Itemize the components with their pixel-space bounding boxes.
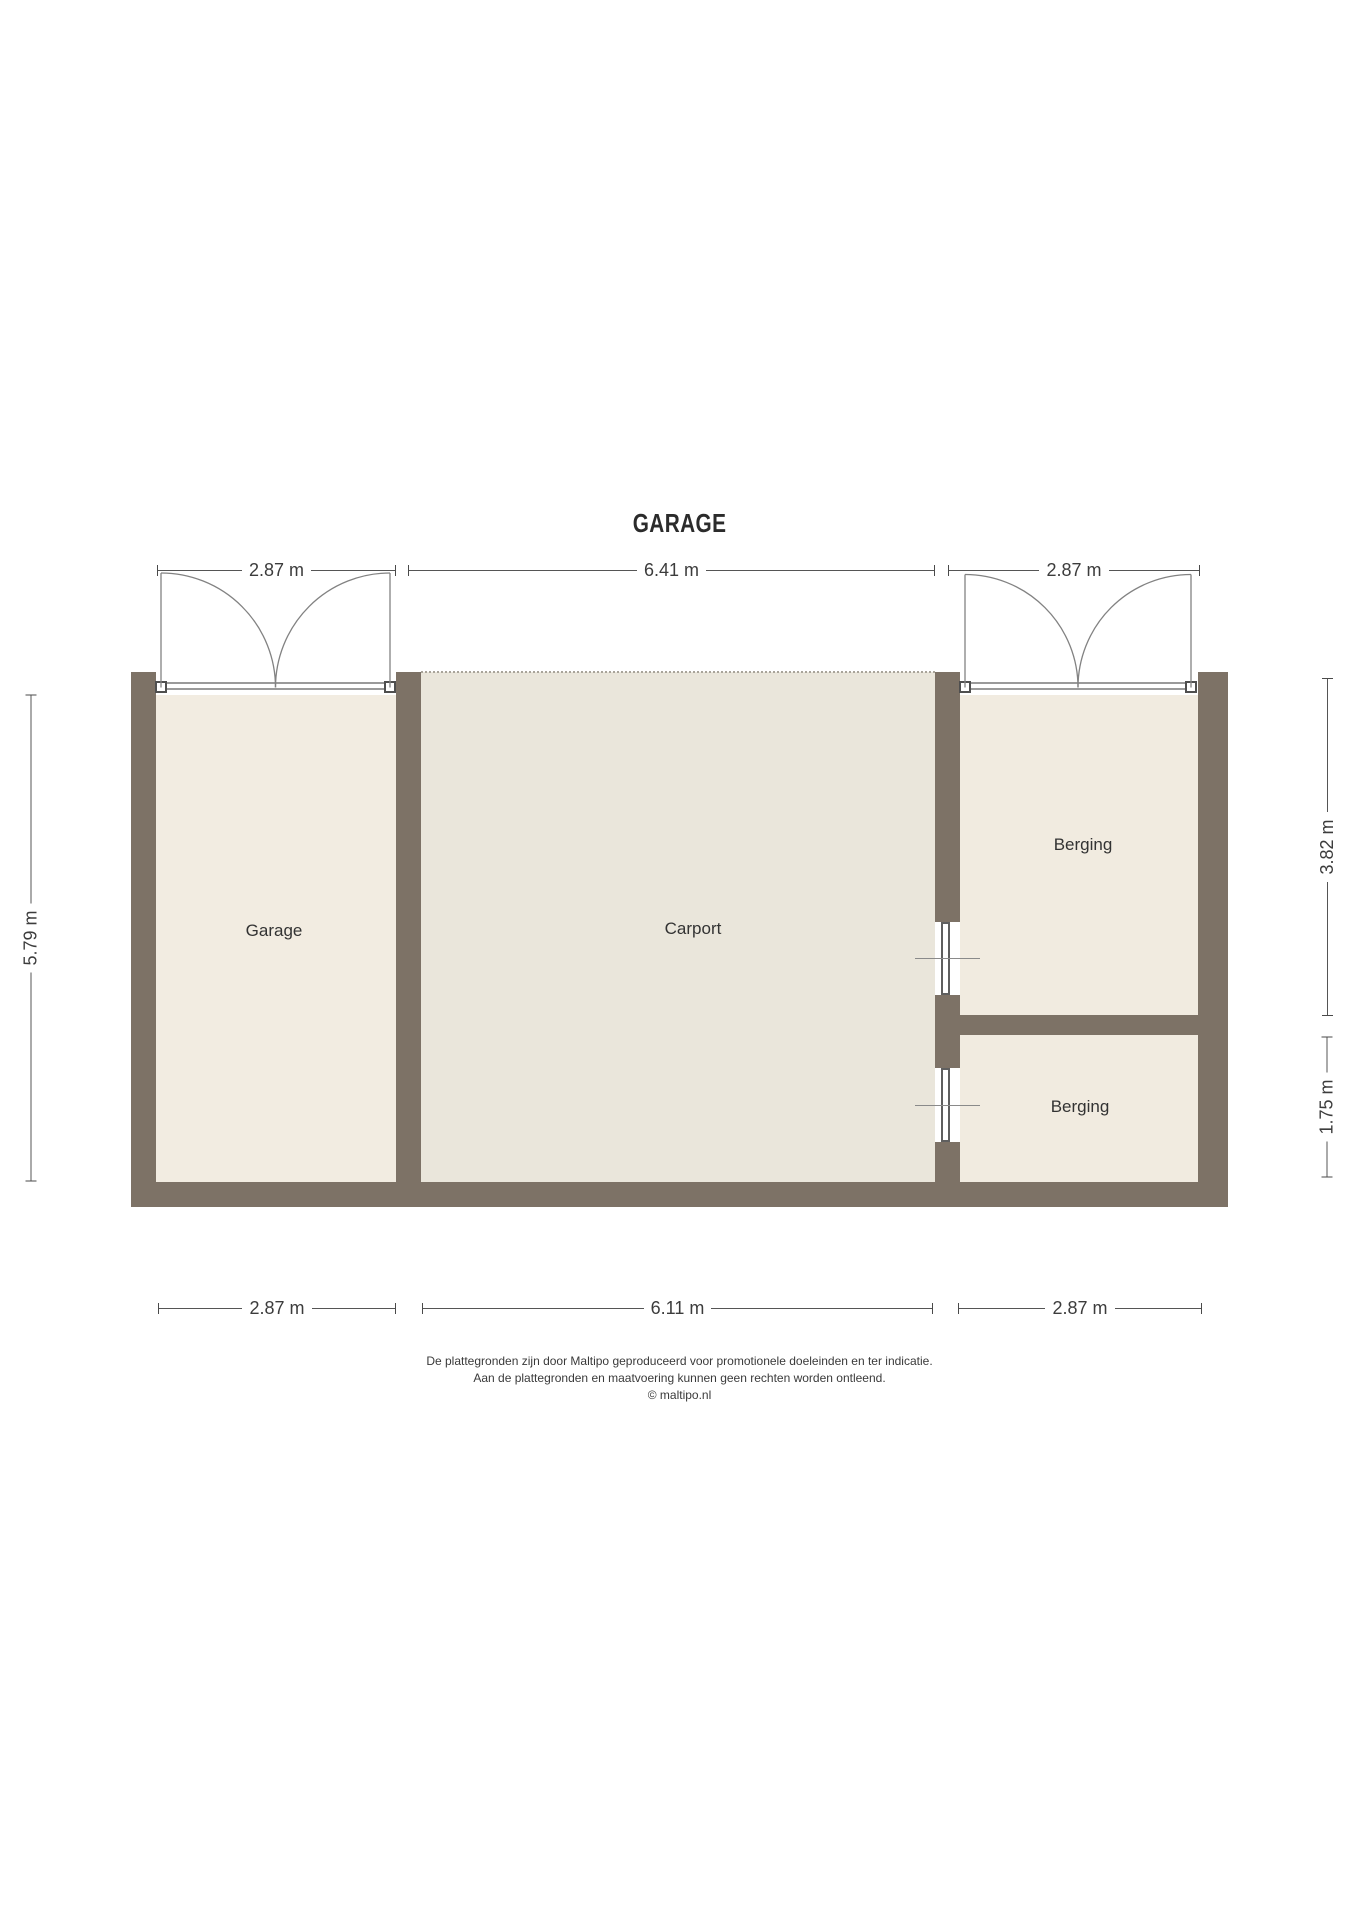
wall-right (1198, 672, 1228, 1207)
berging-door-threshold (971, 682, 1185, 690)
dim-bottom-right: 2.87 m (958, 1298, 1202, 1318)
dim-line (312, 1308, 395, 1309)
berging-top-floor (960, 695, 1198, 1015)
dim-line (30, 696, 31, 904)
dim-line (409, 570, 637, 571)
dim-line (959, 1308, 1045, 1309)
dim-label: 1.75 m (1317, 1072, 1337, 1141)
dim-line (1327, 882, 1328, 1015)
room-label-berging-top: Berging (1054, 835, 1113, 855)
plan-title: GARAGE (131, 508, 1228, 539)
dim-right-upper: 3.82 m (1317, 678, 1337, 1016)
room-label-garage: Garage (246, 921, 303, 941)
door-jamb (155, 681, 167, 693)
dim-line (423, 1308, 644, 1309)
wall-left (131, 672, 156, 1207)
door-jamb (1185, 681, 1197, 693)
dim-tick (1321, 1037, 1332, 1038)
wall-between-bergings (960, 1015, 1198, 1035)
dim-line (1327, 679, 1328, 812)
garage-double-door (161, 573, 390, 688)
dim-label: 2.87 m (1039, 560, 1108, 580)
wall-carport-berging-bottom (935, 1142, 960, 1182)
dim-line (158, 570, 242, 571)
dim-top-middle: 6.41 m (408, 560, 935, 580)
dim-line (30, 973, 31, 1181)
disclaimer-line-1: De plattegronden zijn door Maltipo gepro… (131, 1353, 1228, 1370)
dim-tick (1321, 1177, 1332, 1178)
dim-left: 5.79 m (21, 695, 41, 1182)
dim-label: 5.79 m (21, 903, 41, 972)
wall-carport-berging-top (935, 672, 960, 922)
dim-tick (25, 1181, 36, 1182)
dim-line (159, 1308, 242, 1309)
dim-bottom-middle: 6.11 m (422, 1298, 933, 1318)
window-sill-bottom (915, 1105, 980, 1106)
wall-garage-carport (396, 672, 421, 1182)
plan-title-text: GARAGE (633, 508, 727, 539)
dim-tick (934, 565, 935, 576)
dim-top-left: 2.87 m (157, 560, 396, 580)
dim-right-lower: 1.75 m (1317, 1037, 1337, 1178)
disclaimer-line-2: Aan de plattegronden en maatvoering kunn… (131, 1370, 1228, 1387)
floorplan-page: GARAGE Garage (0, 0, 1358, 1920)
room-label-carport: Carport (665, 919, 722, 939)
dim-line (949, 570, 1039, 571)
disclaimer: De plattegronden zijn door Maltipo gepro… (131, 1353, 1228, 1404)
window-sill-top (915, 958, 980, 959)
carport-open-edge (421, 671, 935, 673)
dim-tick (1199, 565, 1200, 576)
disclaimer-line-3: © maltipo.nl (131, 1387, 1228, 1404)
dim-label: 6.41 m (637, 560, 706, 580)
garage-door-threshold (167, 682, 384, 690)
dim-label: 2.87 m (1045, 1298, 1114, 1318)
dim-tick (1322, 678, 1333, 679)
dim-line (711, 1308, 932, 1309)
dim-tick (395, 1303, 396, 1314)
dim-tick (25, 695, 36, 696)
dim-label: 6.11 m (644, 1298, 712, 1318)
wall-carport-berging-mid (935, 995, 960, 1068)
dim-label: 3.82 m (1317, 812, 1337, 881)
wall-bottom (131, 1182, 1228, 1207)
berging-double-door (965, 575, 1191, 688)
dim-label: 2.87 m (242, 1298, 311, 1318)
dim-top-right: 2.87 m (948, 560, 1200, 580)
door-jamb (384, 681, 396, 693)
dim-line (706, 570, 934, 571)
dim-label: 2.87 m (242, 560, 311, 580)
dim-tick (932, 1303, 933, 1314)
dim-line (1109, 570, 1199, 571)
dim-tick (395, 565, 396, 576)
dim-line (1115, 1308, 1201, 1309)
dim-tick (1322, 1015, 1333, 1016)
dim-tick (1201, 1303, 1202, 1314)
dim-bottom-left: 2.87 m (158, 1298, 396, 1318)
door-jamb (959, 681, 971, 693)
dim-line (1326, 1142, 1327, 1177)
room-label-berging-bottom: Berging (1051, 1097, 1110, 1117)
dim-line (1326, 1038, 1327, 1073)
dim-line (311, 570, 395, 571)
